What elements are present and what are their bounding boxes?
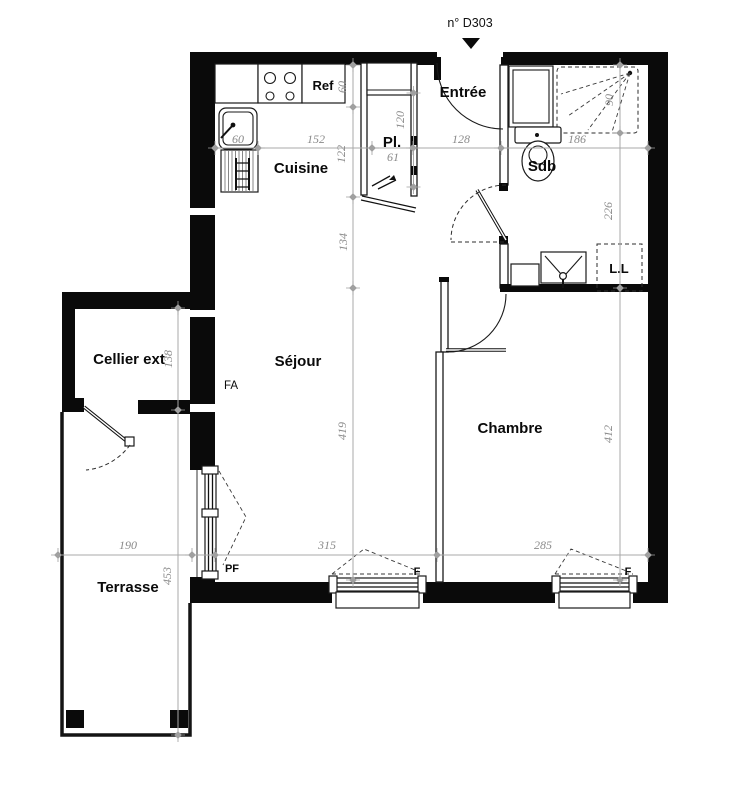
bathroom-fixtures: L.L xyxy=(509,66,642,291)
terrasse-post xyxy=(170,710,188,728)
bathroom-door xyxy=(451,185,506,242)
window-label: F xyxy=(625,566,632,578)
terrasse-post xyxy=(66,710,84,728)
dim-kitchen-depth: 122 xyxy=(334,145,348,163)
bedroom-door xyxy=(446,294,506,352)
stove xyxy=(258,64,302,103)
unit-title: n° D303 xyxy=(447,16,492,49)
dim-entry-width: 128 xyxy=(452,132,470,146)
unit-number-label: n° D303 xyxy=(447,16,492,30)
dim-chambre-height: 412 xyxy=(601,425,615,443)
window-label: F xyxy=(414,566,421,578)
room-label-cellier: Cellier ext xyxy=(93,351,165,368)
interior-partitions xyxy=(361,63,648,582)
dim-shower-depth: 90 xyxy=(602,94,616,106)
dim-counter-depth: 60 xyxy=(335,81,349,93)
dim-sejour-height: 419 xyxy=(335,422,349,440)
cellier-door xyxy=(84,407,134,470)
exterior-walls xyxy=(190,52,668,603)
bath-cabinet xyxy=(511,264,539,286)
terrace-french-door: PF xyxy=(197,466,246,579)
entrance-marker-icon xyxy=(462,38,480,49)
dim-sejour-upper: 134 xyxy=(336,233,350,251)
french-door-label: PF xyxy=(225,563,239,575)
fridge-label: Ref xyxy=(313,78,335,93)
window-sill xyxy=(336,592,419,608)
sejour-window: F xyxy=(329,549,426,608)
washer-label: L.L xyxy=(609,261,629,276)
dim-bath-width: 186 xyxy=(568,132,586,146)
water-heater-symbol xyxy=(372,175,396,189)
window-sill xyxy=(559,592,630,608)
dim-chambre-width: 285 xyxy=(534,538,552,552)
room-label-sejour: Séjour xyxy=(275,353,322,370)
chambre-window: F xyxy=(552,549,637,608)
floor-plan-canvas: n° D303 xyxy=(0,0,736,800)
vanity xyxy=(509,66,553,127)
dim-closet-width: 61 xyxy=(387,150,399,164)
fa-label: FA xyxy=(224,380,238,392)
dim-terrasse-width: 190 xyxy=(119,538,137,552)
kitchen-unit xyxy=(221,150,258,192)
dim-bath-height: 226 xyxy=(601,202,615,220)
closet-door-open xyxy=(361,196,416,212)
room-labels: Cuisine Entrée Pl. Sdb Séjour Chambre Ce… xyxy=(93,84,556,596)
shower xyxy=(557,67,638,133)
room-label-closet: Pl. xyxy=(383,134,401,151)
dim-closet-depth: 120 xyxy=(393,111,407,129)
counter xyxy=(215,64,258,103)
room-label-cuisine: Cuisine xyxy=(274,160,328,177)
room-label-chambre: Chambre xyxy=(477,420,542,437)
floor-plan-page: n° D303 xyxy=(0,0,736,800)
room-label-entree: Entrée xyxy=(440,84,487,101)
dim-kitchen-width: 152 xyxy=(307,132,325,146)
washbasin xyxy=(541,252,586,288)
room-label-terrasse: Terrasse xyxy=(97,579,158,596)
dim-terrasse-height: 453 xyxy=(160,567,174,585)
dim-sejour-width: 315 xyxy=(317,538,336,552)
dim-sink-width: 60 xyxy=(232,132,244,146)
room-label-sdb: Sdb xyxy=(528,158,556,175)
